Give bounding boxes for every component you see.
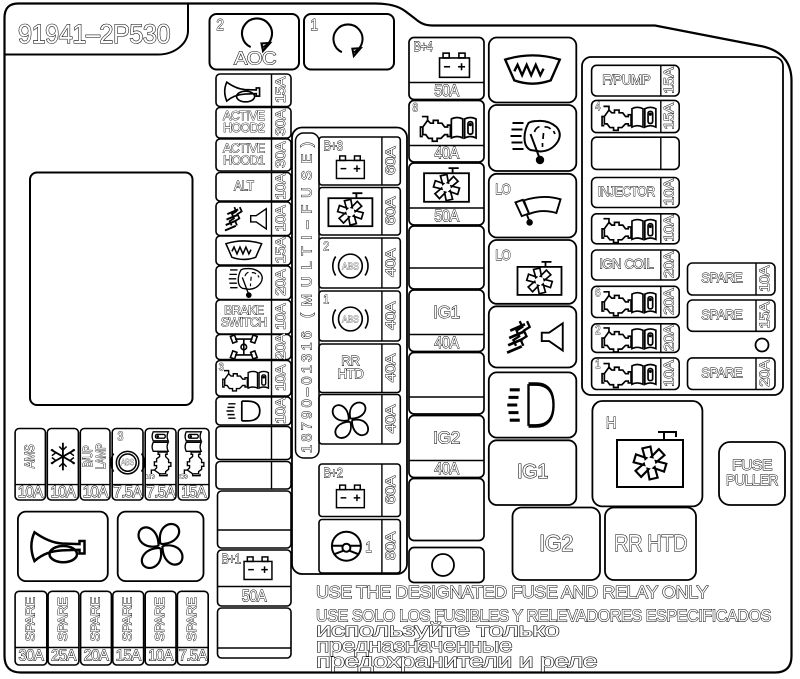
svg-text:60A: 60A bbox=[382, 196, 398, 225]
svg-text:1: 1 bbox=[310, 17, 317, 34]
svg-text:91941–2P530: 91941–2P530 bbox=[18, 20, 170, 49]
svg-text:18790–01316: 18790–01316 bbox=[299, 331, 315, 453]
svg-text:20A: 20A bbox=[662, 251, 677, 278]
svg-text:40A: 40A bbox=[382, 301, 398, 330]
svg-text:60A: 60A bbox=[382, 475, 398, 504]
svg-text:15A: 15A bbox=[116, 647, 142, 665]
svg-text:AMS: AMS bbox=[22, 445, 37, 469]
svg-text:7.5A: 7.5A bbox=[146, 484, 176, 502]
svg-text:40A: 40A bbox=[382, 248, 398, 277]
svg-text:B+4: B+4 bbox=[413, 39, 432, 54]
svg-text:15A: 15A bbox=[181, 484, 207, 502]
svg-text:SWITCH: SWITCH bbox=[221, 315, 267, 329]
svg-text:LO: LO bbox=[495, 181, 510, 198]
svg-text:20A: 20A bbox=[662, 325, 677, 352]
svg-text:HOOD2: HOOD2 bbox=[223, 121, 265, 135]
svg-text:3: 3 bbox=[219, 362, 224, 374]
svg-text:30A: 30A bbox=[272, 141, 288, 168]
svg-text:ABS: ABS bbox=[342, 260, 359, 272]
svg-text:20A: 20A bbox=[272, 269, 288, 296]
svg-text:1: 1 bbox=[595, 358, 600, 371]
svg-text:F/PUMP: F/PUMP bbox=[602, 71, 650, 87]
svg-text:8: 8 bbox=[412, 102, 417, 115]
svg-text:7.5A: 7.5A bbox=[113, 484, 143, 502]
svg-text:40A: 40A bbox=[382, 404, 398, 433]
svg-text:15A: 15A bbox=[272, 236, 288, 263]
svg-text:50A: 50A bbox=[434, 207, 459, 225]
svg-text:IGN COIL: IGN COIL bbox=[599, 257, 654, 272]
svg-text:10A: 10A bbox=[83, 484, 109, 502]
svg-text:PULLER: PULLER bbox=[726, 472, 779, 489]
svg-text:SPARE: SPARE bbox=[184, 597, 199, 642]
svg-text:10A: 10A bbox=[272, 303, 288, 330]
svg-text:SPARE: SPARE bbox=[55, 597, 70, 642]
svg-text:ABS: ABS bbox=[342, 313, 359, 325]
svg-text:15A: 15A bbox=[662, 103, 677, 130]
svg-text:10A: 10A bbox=[18, 484, 44, 502]
svg-text:SPARE: SPARE bbox=[152, 597, 167, 642]
svg-text:30A: 30A bbox=[19, 647, 45, 665]
svg-text:1: 1 bbox=[365, 539, 371, 555]
svg-text:40A: 40A bbox=[382, 353, 398, 382]
svg-text:15A: 15A bbox=[757, 302, 772, 329]
svg-text:50A: 50A bbox=[434, 82, 459, 100]
svg-text:RR HTD: RR HTD bbox=[614, 530, 687, 556]
svg-text:20A: 20A bbox=[272, 333, 288, 360]
svg-text:SPARE: SPARE bbox=[701, 364, 742, 380]
svg-text:50A: 50A bbox=[242, 587, 267, 605]
svg-text:HOOD1: HOOD1 bbox=[223, 153, 265, 167]
svg-text:20A: 20A bbox=[84, 647, 110, 665]
svg-text:7.5A: 7.5A bbox=[179, 647, 209, 665]
svg-text:IG1: IG1 bbox=[517, 461, 548, 483]
svg-text:60A: 60A bbox=[382, 146, 398, 175]
svg-text:15A: 15A bbox=[272, 76, 288, 103]
svg-text:10A: 10A bbox=[272, 364, 288, 391]
svg-text:AOC: AOC bbox=[234, 48, 276, 69]
svg-text:10A: 10A bbox=[272, 173, 288, 200]
svg-text:ALT: ALT bbox=[234, 178, 254, 194]
svg-text:10A: 10A bbox=[272, 397, 288, 424]
svg-text:2: 2 bbox=[595, 324, 600, 337]
svg-text:3: 3 bbox=[117, 428, 123, 443]
svg-text:B+3: B+3 bbox=[323, 139, 342, 154]
svg-text:9: 9 bbox=[178, 474, 191, 479]
svg-text:15A: 15A bbox=[662, 67, 677, 94]
svg-text:20A: 20A bbox=[757, 360, 772, 387]
svg-text:40A: 40A bbox=[434, 334, 459, 352]
svg-text:10A: 10A bbox=[662, 179, 677, 206]
svg-text:H: H bbox=[606, 414, 616, 432]
svg-text:B+2: B+2 bbox=[323, 466, 342, 481]
svg-text:SPARE: SPARE bbox=[88, 597, 103, 642]
svg-text:10A: 10A bbox=[662, 360, 677, 387]
svg-text:5: 5 bbox=[145, 474, 158, 479]
svg-text:10A: 10A bbox=[662, 215, 677, 242]
svg-text:HTD: HTD bbox=[337, 366, 364, 381]
svg-text:4: 4 bbox=[595, 101, 600, 114]
svg-text:6: 6 bbox=[595, 287, 600, 300]
svg-text:LO: LO bbox=[495, 247, 510, 264]
svg-text:10A: 10A bbox=[148, 647, 174, 665]
svg-text:10A: 10A bbox=[757, 265, 772, 292]
svg-text:SPARE: SPARE bbox=[701, 306, 742, 322]
svg-text:IG2: IG2 bbox=[433, 428, 460, 448]
svg-text:2: 2 bbox=[323, 238, 329, 253]
svg-text:20A: 20A bbox=[662, 288, 677, 315]
svg-text:IG2: IG2 bbox=[539, 531, 573, 557]
svg-text:40A: 40A bbox=[434, 145, 459, 163]
svg-text:40A: 40A bbox=[434, 460, 459, 478]
svg-text:SPARE: SPARE bbox=[120, 597, 135, 642]
svg-text:2: 2 bbox=[216, 17, 223, 34]
svg-text:ABS: ABS bbox=[121, 457, 134, 467]
svg-text:25A: 25A bbox=[51, 647, 77, 665]
svg-text:10A: 10A bbox=[51, 484, 77, 502]
svg-text:80A: 80A bbox=[382, 531, 398, 560]
svg-text:LAMP: LAMP bbox=[95, 444, 108, 470]
svg-text:USE THE DESIGNATED FUSE AND RE: USE THE DESIGNATED FUSE AND RELAY ONLY bbox=[316, 582, 709, 602]
svg-text:INJECTOR: INJECTOR bbox=[598, 183, 655, 199]
svg-text:30A: 30A bbox=[272, 109, 288, 136]
svg-text:B+1: B+1 bbox=[221, 552, 240, 567]
svg-text:SPARE: SPARE bbox=[22, 597, 37, 642]
svg-text:B/UP: B/UP bbox=[82, 446, 95, 468]
svg-text:предохранители и реле: предохранители и реле bbox=[316, 650, 597, 672]
svg-text:1: 1 bbox=[323, 291, 329, 306]
svg-text:IG1: IG1 bbox=[433, 302, 460, 322]
svg-text:10A: 10A bbox=[272, 205, 288, 232]
svg-text:SPARE: SPARE bbox=[701, 270, 742, 286]
